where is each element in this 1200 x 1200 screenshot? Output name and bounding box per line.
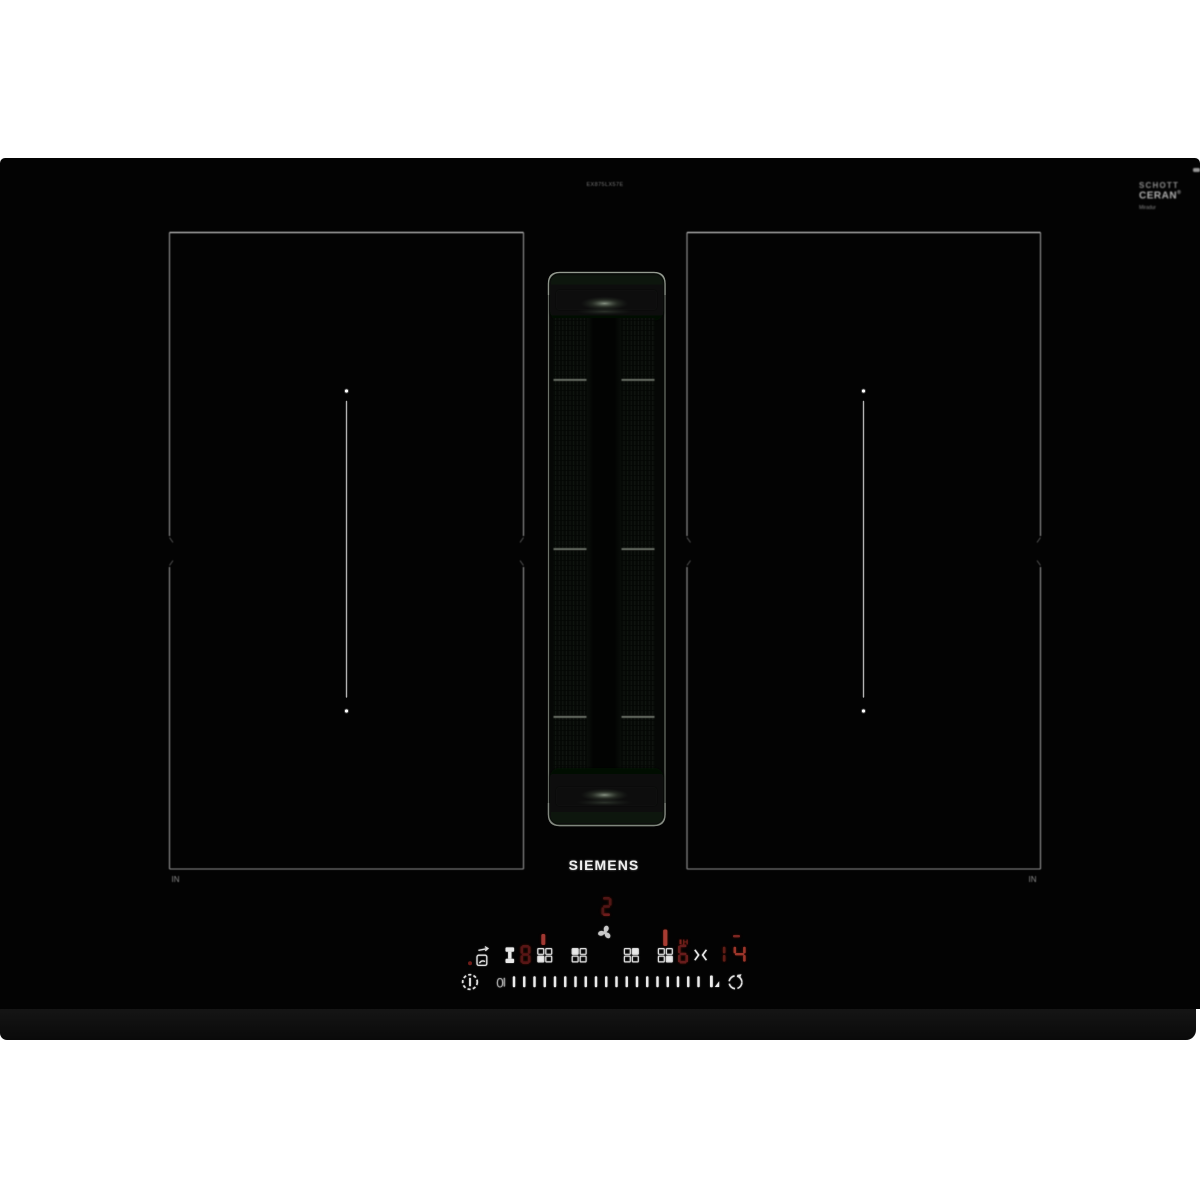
svg-text:0: 0 (496, 975, 504, 990)
